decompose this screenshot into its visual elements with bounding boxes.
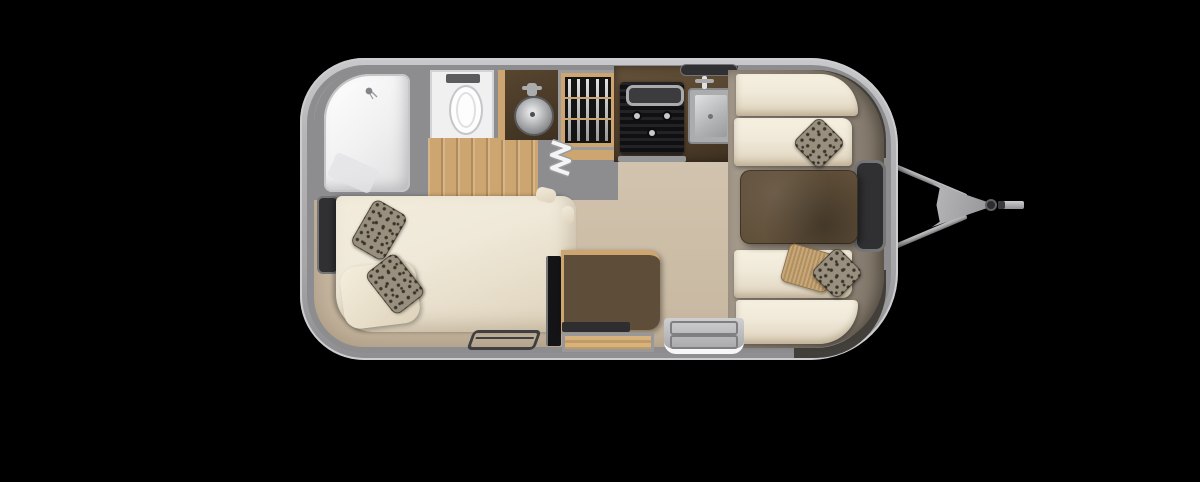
window-front: [854, 160, 886, 252]
toilet-icon: [449, 85, 483, 135]
shower-head-icon: [364, 86, 380, 100]
credenza-ledge: [562, 322, 630, 332]
closet-rail: [565, 118, 611, 120]
hanger-icon: [586, 79, 589, 141]
dinette-table: [740, 170, 858, 244]
dinette-upper-backrest: [736, 74, 858, 116]
floor-register-icon: [466, 330, 541, 350]
vanity-round-sink-icon: [514, 96, 554, 136]
stove-lid-handle: [626, 85, 684, 106]
hitch-coupler-icon: [985, 199, 997, 211]
wardrobe-interior: [565, 77, 611, 143]
kitchen-faucet-icon: [702, 76, 707, 89]
hanger-icon: [596, 79, 599, 141]
credenza-cabinet: [561, 250, 660, 330]
bed-corner-tab: [562, 206, 574, 224]
wardrobe-closet: [558, 70, 618, 150]
stove-base-trim: [618, 156, 686, 162]
credenza-drawer: [562, 333, 654, 352]
closet-rail: [565, 97, 611, 99]
toilet-tank: [446, 74, 480, 83]
trailer-body: [300, 58, 898, 360]
burner-knob-icon: [649, 130, 655, 136]
hitch-jack-handle: [998, 201, 1024, 209]
hitch-arm-lower: [892, 214, 968, 250]
vanity-faucet-icon: [527, 83, 537, 96]
tv-panel: [546, 256, 561, 346]
burner-knob-icon: [664, 113, 670, 119]
step-tread: [670, 335, 738, 349]
hanger-icon: [605, 79, 608, 141]
hanger-icon: [577, 79, 580, 141]
folding-door-icon: [549, 139, 573, 179]
burner-knob-icon: [634, 113, 640, 119]
floorplan-scene: [0, 0, 1200, 482]
entry-door-step: [664, 318, 744, 354]
hanger-icon: [568, 79, 571, 141]
shower-stall: [324, 74, 410, 192]
dinette-lower-backrest: [736, 300, 858, 344]
bathroom-wood-floor: [428, 138, 538, 202]
step-tread: [670, 321, 738, 335]
